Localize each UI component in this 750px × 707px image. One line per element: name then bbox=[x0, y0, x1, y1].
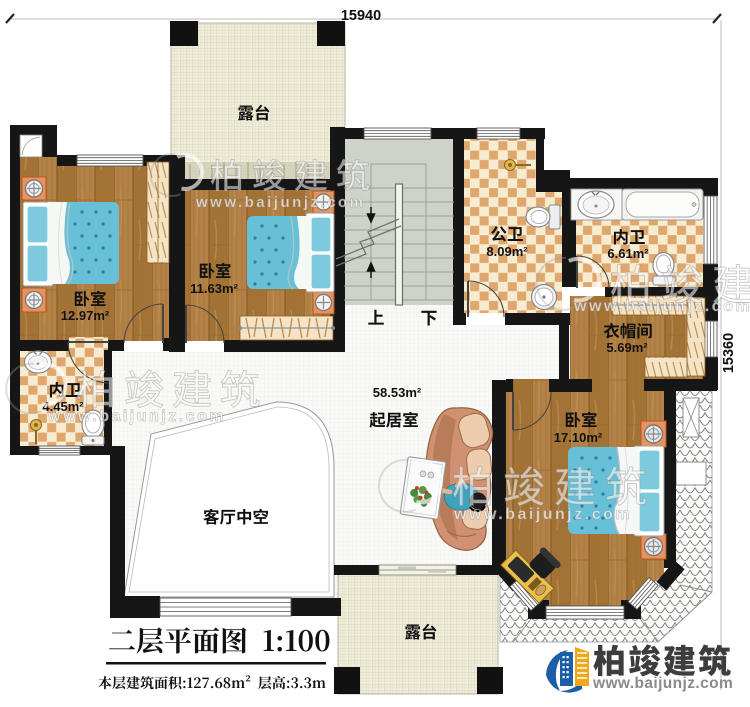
svg-text:11.63m²: 11.63m² bbox=[190, 281, 238, 296]
svg-text:58.53m²: 58.53m² bbox=[373, 385, 422, 400]
svg-text:15360: 15360 bbox=[721, 333, 737, 373]
svg-text:12.97m²: 12.97m² bbox=[61, 308, 110, 323]
svg-text:www.baijunjz.com: www.baijunjz.com bbox=[453, 506, 632, 523]
svg-text:8.09m²: 8.09m² bbox=[486, 244, 528, 259]
svg-text:www.baijunjz.com: www.baijunjz.com bbox=[47, 408, 226, 425]
svg-text:www.baijunjz.com: www.baijunjz.com bbox=[592, 675, 733, 692]
svg-text:www.baijunjz.com: www.baijunjz.com bbox=[195, 194, 365, 211]
svg-text:17.10m²: 17.10m² bbox=[554, 430, 603, 445]
svg-text:15940: 15940 bbox=[341, 8, 381, 24]
svg-text:www.baijunjz.com: www.baijunjz.com bbox=[573, 298, 750, 315]
svg-text:5.69m²: 5.69m² bbox=[606, 340, 648, 355]
svg-text:6.61m²: 6.61m² bbox=[607, 246, 649, 261]
